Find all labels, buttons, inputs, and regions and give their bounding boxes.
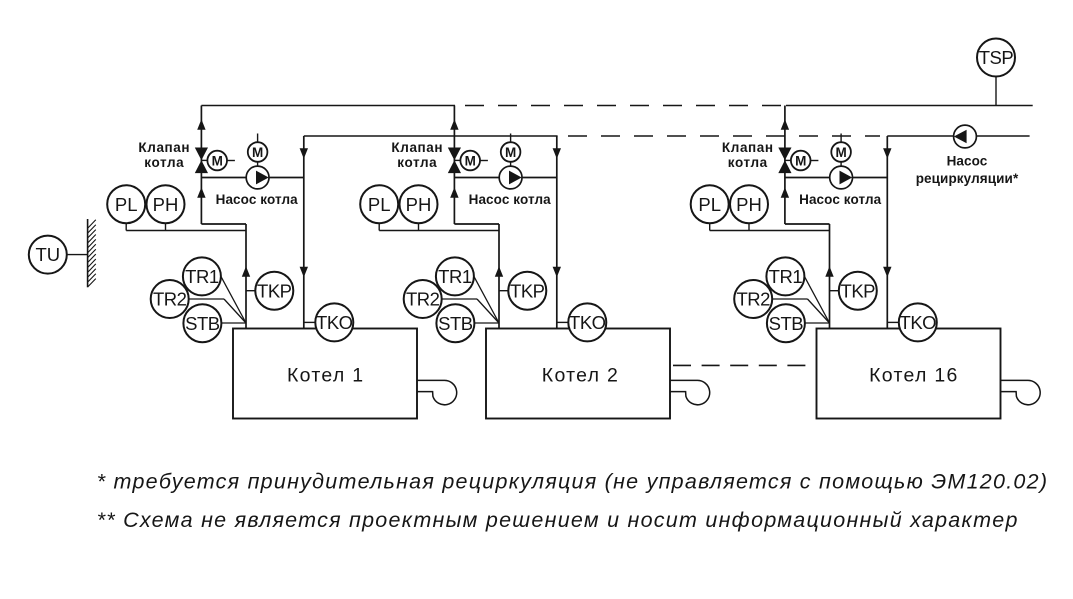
svg-text:PL: PL xyxy=(115,194,138,215)
svg-text:PL: PL xyxy=(368,194,391,215)
svg-text:M: M xyxy=(465,153,476,168)
svg-text:TKP: TKP xyxy=(510,280,545,301)
svg-text:TR2: TR2 xyxy=(153,289,187,310)
svg-text:PH: PH xyxy=(406,194,432,215)
svg-text:PH: PH xyxy=(153,194,179,215)
svg-text:TR1: TR1 xyxy=(438,266,472,287)
svg-text:Клапан: Клапан xyxy=(138,140,190,155)
svg-text:PH: PH xyxy=(736,194,762,215)
svg-text:Котел 16: Котел 16 xyxy=(869,365,959,387)
svg-text:Насос: Насос xyxy=(947,154,988,169)
svg-text:TR1: TR1 xyxy=(185,266,219,287)
svg-text:STB: STB xyxy=(185,313,220,334)
svg-text:TKO: TKO xyxy=(900,312,937,333)
svg-text:STB: STB xyxy=(769,313,804,334)
svg-text:TSP: TSP xyxy=(979,47,1014,68)
svg-text:Котел 2: Котел 2 xyxy=(542,365,619,387)
svg-text:TKP: TKP xyxy=(257,280,292,301)
svg-text:TR2: TR2 xyxy=(406,289,440,310)
svg-text:STB: STB xyxy=(438,313,473,334)
svg-text:TKO: TKO xyxy=(316,312,353,333)
svg-text:TR2: TR2 xyxy=(736,289,770,310)
svg-text:Клапан: Клапан xyxy=(722,140,774,155)
svg-text:PL: PL xyxy=(698,194,721,215)
svg-text:Насос котла: Насос котла xyxy=(469,192,552,207)
svg-text:M: M xyxy=(505,145,516,160)
svg-text:TKP: TKP xyxy=(841,280,876,301)
svg-text:Насос котла: Насос котла xyxy=(799,192,882,207)
svg-text:Насос котла: Насос котла xyxy=(216,192,299,207)
svg-text:TU: TU xyxy=(35,244,60,265)
svg-text:котла: котла xyxy=(144,155,184,170)
svg-text:** Схема не является проектным: ** Схема не является проектным решением … xyxy=(97,508,1019,532)
svg-text:TKO: TKO xyxy=(569,312,606,333)
svg-text:M: M xyxy=(212,153,223,168)
svg-text:M: M xyxy=(795,153,806,168)
svg-text:котла: котла xyxy=(397,155,437,170)
svg-text:котла: котла xyxy=(728,155,768,170)
svg-text:M: M xyxy=(252,145,263,160)
svg-text:* требуется принудительная рец: * требуется принудительная рециркуляция … xyxy=(97,470,1049,494)
svg-text:Клапан: Клапан xyxy=(391,140,443,155)
svg-text:TR1: TR1 xyxy=(769,266,803,287)
svg-text:M: M xyxy=(835,145,846,160)
svg-text:рециркуляции*: рециркуляции* xyxy=(916,171,1019,186)
svg-text:Котел 1: Котел 1 xyxy=(287,365,364,387)
